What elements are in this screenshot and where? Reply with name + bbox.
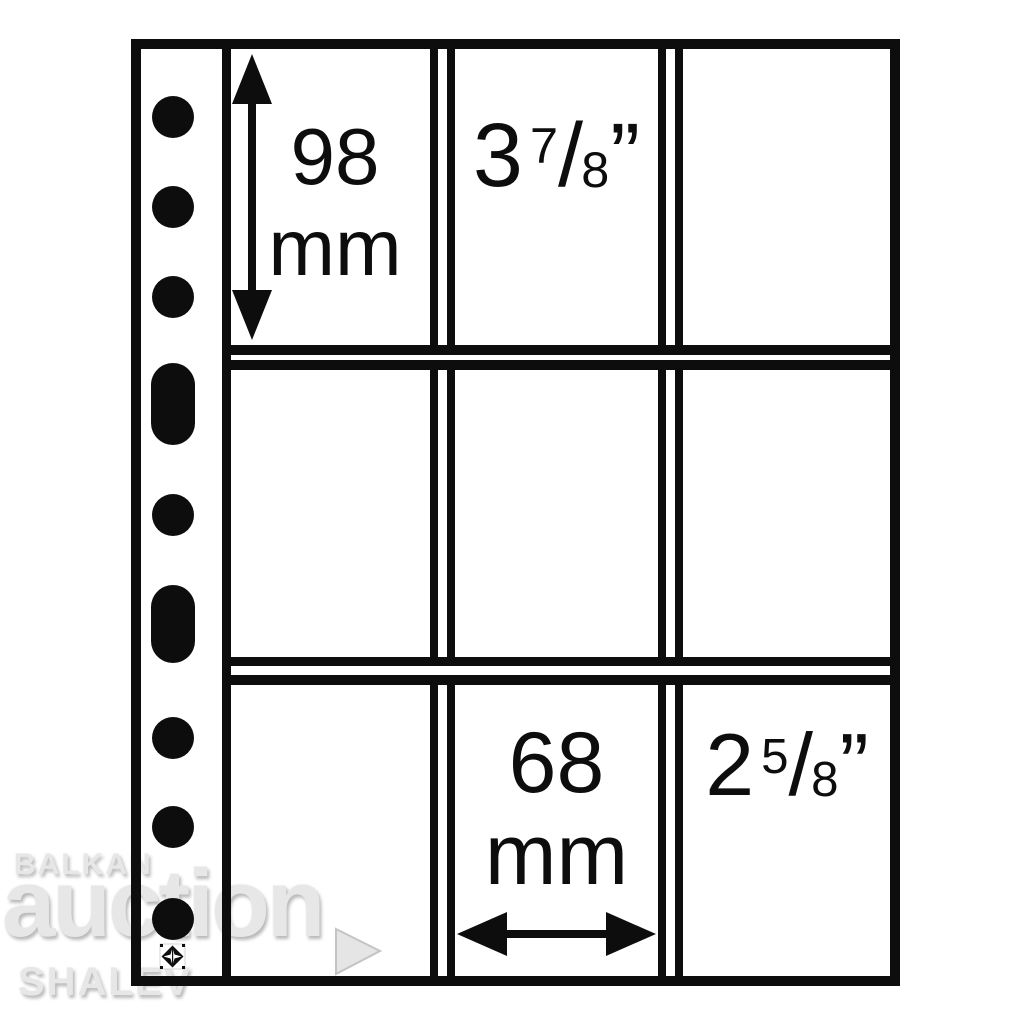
binder-hole-round [152,494,194,536]
pocket-height-inch-label: 37/8” [455,111,658,201]
column-divider-line [430,685,438,976]
product-image: BALKAN auction SHALEV [0,0,1024,1024]
binder-hole-slot [151,363,195,445]
row-divider-line [222,657,890,666]
width-unit: mm [455,809,658,901]
inch-slash: / [788,715,811,814]
diamond-compass-icon [159,943,186,975]
column-divider-line [447,370,455,657]
inch-whole: 2 [705,715,754,814]
pocket-cell [456,370,658,657]
column-divider-line [447,685,455,976]
binder-hole-round [152,276,194,318]
column-divider-line [658,685,666,976]
pocket-width-inch-label: 25/8” [684,721,890,809]
column-divider-line [675,370,683,657]
height-value: 98 [225,111,445,202]
pocket-width-mm-label: 68 mm [455,717,658,901]
inch-numerator: 7 [530,117,558,174]
column-divider-line [658,370,666,657]
pocket-cell [231,370,430,657]
binder-hole-round [152,806,194,848]
row-divider-line [222,675,890,685]
binder-hole-round [152,186,194,228]
pocket-height-mm-label: 98 mm [225,111,445,293]
album-sheet: 98 mm 37/8” 68 mm 25/8” [131,39,900,986]
pocket-cell [684,49,890,345]
pocket-cell [684,370,890,657]
binder-hole-round [152,96,194,138]
inch-slash: / [558,106,581,206]
column-divider-line [675,49,683,345]
binder-strip [141,49,222,976]
column-divider-line [658,49,666,345]
binder-hole-round [152,898,194,940]
inch-denominator: 8 [811,752,838,807]
column-divider-line [447,49,455,345]
binder-hole-slot [151,585,195,663]
pocket-cell [231,685,430,976]
row-divider-line [222,360,890,370]
inch-denominator: 8 [581,141,609,198]
inch-numerator: 5 [761,729,788,784]
inch-mark: ” [839,715,868,814]
inch-mark: ” [610,106,640,206]
height-unit: mm [225,202,445,293]
column-divider-line [675,685,683,976]
column-divider-line [430,370,438,657]
inch-whole: 3 [473,106,523,206]
width-value: 68 [455,717,658,809]
width-dimension-arrow-icon [455,910,658,963]
binder-hole-round [152,717,194,759]
row-divider-line [222,345,890,355]
